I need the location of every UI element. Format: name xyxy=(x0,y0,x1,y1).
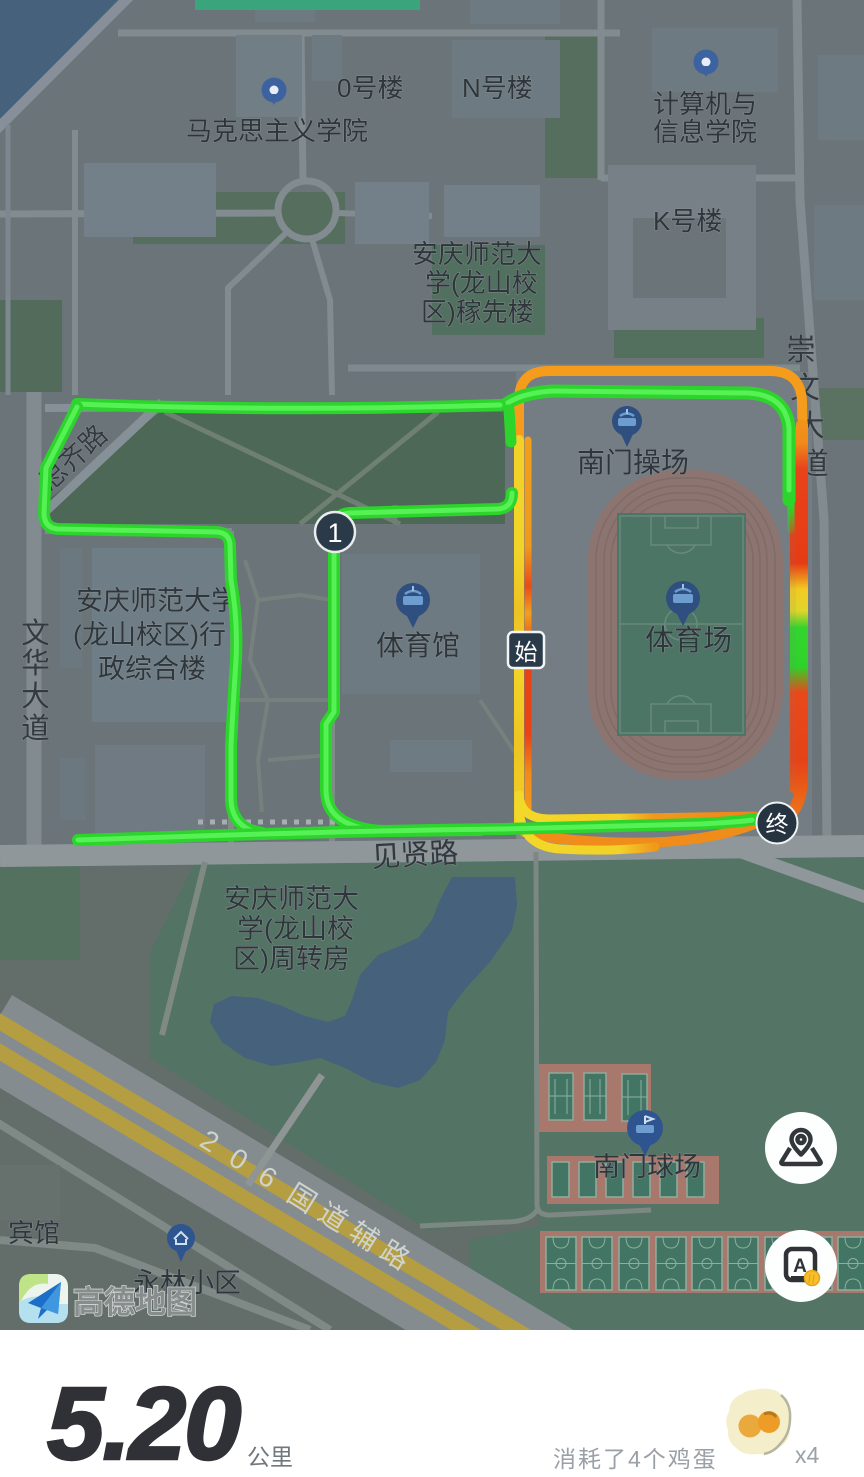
svg-text:学(龙山校: 学(龙山校 xyxy=(425,268,538,298)
svg-text:N号楼: N号楼 xyxy=(462,73,533,103)
svg-text:0号楼: 0号楼 xyxy=(337,73,403,103)
svg-text:1: 1 xyxy=(327,518,342,548)
svg-text:体育场: 体育场 xyxy=(645,624,732,657)
svg-text:高德地图: 高德地图 xyxy=(73,1285,197,1320)
svg-text:区)稼先楼: 区)稼先楼 xyxy=(421,297,534,327)
svg-text:文: 文 xyxy=(21,617,50,650)
svg-text:南门操场: 南门操场 xyxy=(577,447,689,478)
svg-text:政综合楼: 政综合楼 xyxy=(98,654,206,684)
svg-text:计算机与: 计算机与 xyxy=(653,89,757,119)
svg-text:学(龙山校: 学(龙山校 xyxy=(237,914,354,944)
svg-text:K号楼: K号楼 xyxy=(653,206,722,236)
svg-text:终: 终 xyxy=(766,811,789,837)
svg-text:南门球场: 南门球场 xyxy=(593,1152,701,1182)
svg-text:马克思主义学院: 马克思主义学院 xyxy=(186,116,368,146)
svg-text:安庆师范大: 安庆师范大 xyxy=(412,239,542,269)
svg-text:崇: 崇 xyxy=(786,334,816,367)
svg-text:(龙山校区)行: (龙山校区)行 xyxy=(73,620,226,650)
svg-text:华: 华 xyxy=(21,647,50,680)
svg-text:信息学院: 信息学院 xyxy=(653,117,757,147)
svg-text:体育馆: 体育馆 xyxy=(376,630,460,661)
svg-text:安庆师范大学: 安庆师范大学 xyxy=(76,586,238,616)
svg-text:大: 大 xyxy=(21,680,50,713)
svg-text:区)周转房: 区)周转房 xyxy=(233,944,350,974)
svg-text:宾馆: 宾馆 xyxy=(8,1218,60,1248)
svg-text:道: 道 xyxy=(21,712,50,745)
svg-text:安庆师范大: 安庆师范大 xyxy=(224,884,359,914)
svg-text:始: 始 xyxy=(515,639,538,665)
svg-text:见贤路: 见贤路 xyxy=(371,836,460,874)
